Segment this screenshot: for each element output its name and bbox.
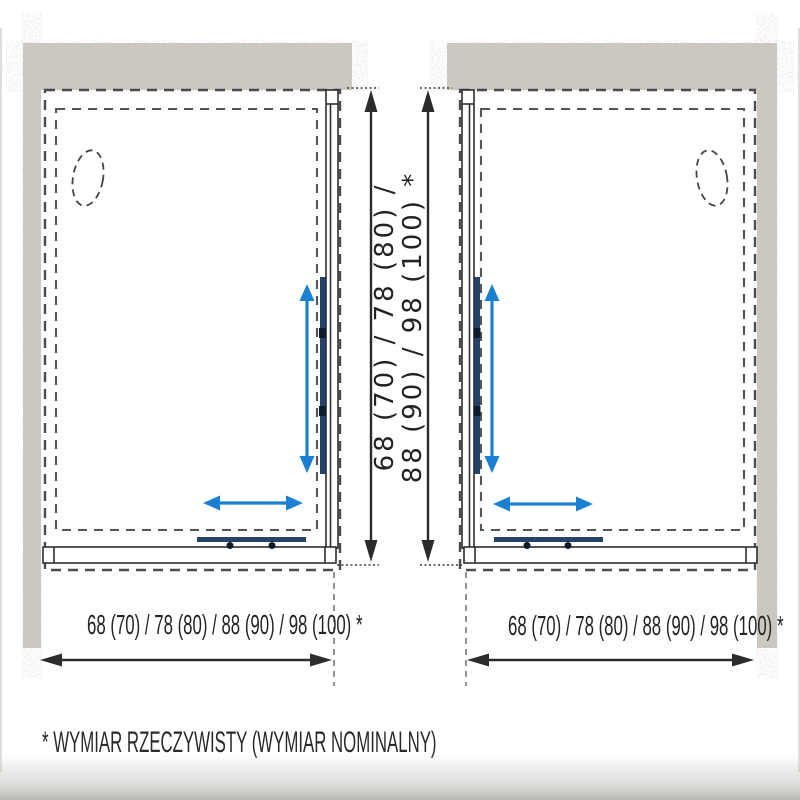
slide-direction-arrow-vertical [300, 284, 315, 473]
tray-outline-dashed [481, 109, 744, 530]
left-drawing [23, 43, 379, 686]
side-panel-profile [462, 90, 474, 548]
slide-direction-arrow-horizontal [203, 496, 303, 511]
slide-direction-arrow-vertical [485, 284, 500, 473]
wall-right [757, 43, 777, 648]
tray-outline-dashed [56, 109, 317, 530]
image-border-left [0, 28, 2, 772]
enclosure-outline-dashed [460, 90, 755, 570]
shower-enclosure-dimension-diagram: 68 (70) / 78 (80) / 88 (90) / 98 (100) *… [0, 0, 800, 800]
height-dimension-label: 68 (70) / 78 (80) / 88 (90) / 98 (100) * [371, 171, 427, 484]
wall-left [23, 43, 41, 648]
drain-outline-dashed [68, 148, 107, 208]
right-drawing [420, 43, 777, 686]
height-dimension-label-line2: 88 (90) / 98 (100) * [399, 171, 427, 484]
wall-top [23, 43, 352, 90]
side-panel-profile [326, 90, 338, 548]
wall-top [447, 43, 777, 90]
slide-direction-arrow-horizontal [493, 497, 593, 512]
bottom-shadow-gradient [0, 754, 800, 800]
width-dimension-label-right: 68 (70) / 78 (80) / 88 (90) / 98 (100) * [508, 609, 712, 643]
sliding-door-side [319, 277, 326, 474]
height-dimension-label-line1: 68 (70) / 78 (80) / [371, 171, 399, 484]
bottom-rail-profile [464, 547, 757, 563]
enclosure-outline-dashed [45, 90, 340, 570]
bottom-rail-profile [43, 547, 336, 563]
width-dimension-label-left: 68 (70) / 78 (80) / 88 (90) / 98 (100) * [87, 608, 291, 642]
drain-outline-dashed [692, 148, 731, 208]
sliding-door-side [474, 277, 481, 474]
